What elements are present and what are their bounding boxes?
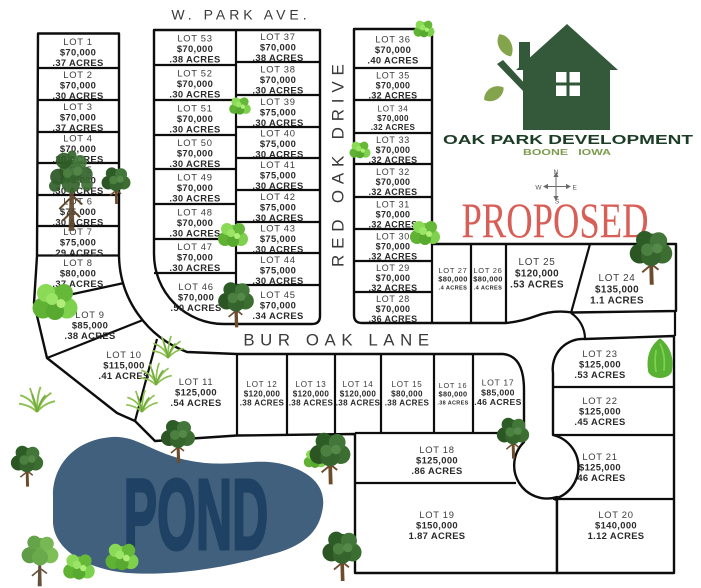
svg-text:E: E <box>573 185 578 192</box>
svg-text:BUR OAK LANE: BUR OAK LANE <box>243 331 434 350</box>
svg-text:LOT 27$80,000.4 ACRES: LOT 27$80,000.4 ACRES <box>438 266 468 292</box>
svg-text:LOT 26$80,000.4 ACRES: LOT 26$80,000.4 ACRES <box>473 266 503 292</box>
svg-text:PROPOSED: PROPOSED <box>462 192 649 248</box>
svg-text:RED OAK DRIVE: RED OAK DRIVE <box>329 58 348 267</box>
svg-text:N: N <box>554 169 559 176</box>
svg-text:BOONE IOWA: BOONE IOWA <box>523 147 611 157</box>
svg-text:LOT 16$80,000.38 ACRES: LOT 16$80,000.38 ACRES <box>437 381 468 406</box>
svg-text:OAK PARK DEVELOPMENT: OAK PARK DEVELOPMENT <box>443 133 694 147</box>
svg-text:W: W <box>535 185 542 192</box>
svg-text:W. PARK AVE.: W. PARK AVE. <box>171 7 310 23</box>
svg-text:POND: POND <box>124 458 268 571</box>
